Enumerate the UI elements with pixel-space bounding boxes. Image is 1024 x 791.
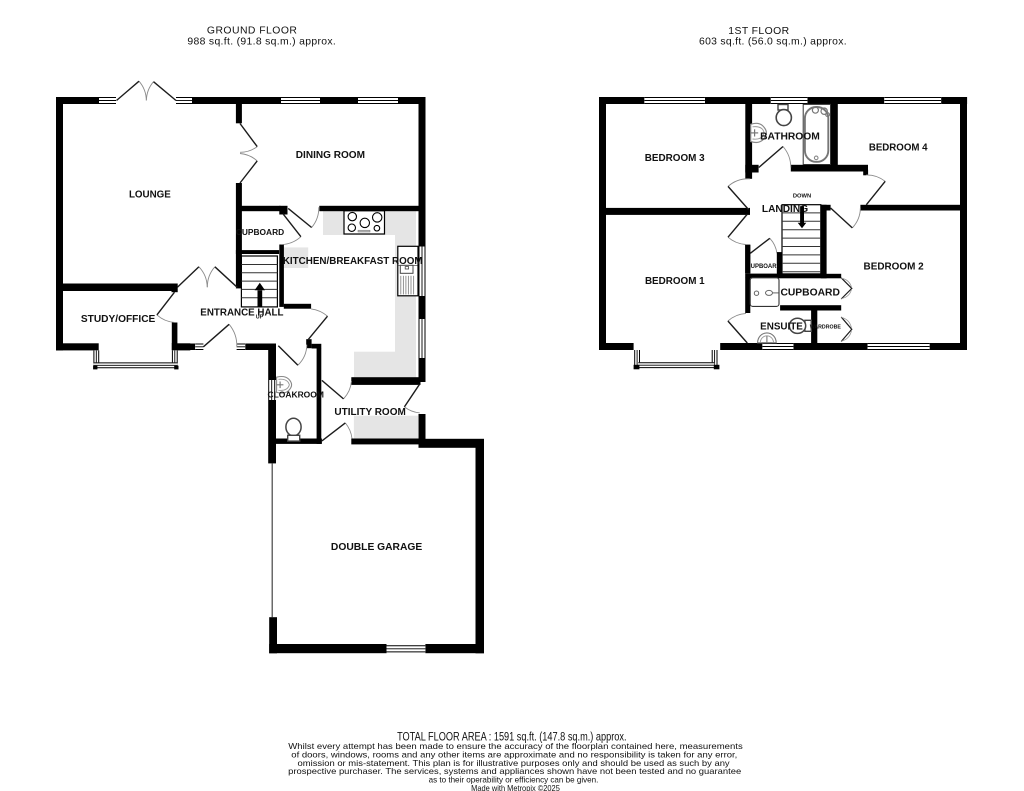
svg-text:BEDROOM 1: BEDROOM 1 — [645, 276, 705, 287]
svg-text:BATHROOM: BATHROOM — [760, 132, 820, 143]
svg-text:ENSUITE: ENSUITE — [760, 322, 803, 333]
svg-text:UP: UP — [256, 315, 264, 321]
svg-text:WARDROBE: WARDROBE — [810, 324, 842, 330]
svg-text:GROUND FLOOR: GROUND FLOOR — [207, 26, 297, 37]
svg-text:BEDROOM 4: BEDROOM 4 — [869, 143, 928, 154]
svg-text:UTILITY ROOM: UTILITY ROOM — [334, 407, 405, 418]
svg-text:DINING ROOM: DINING ROOM — [296, 150, 365, 161]
svg-text:STUDY/OFFICE: STUDY/OFFICE — [81, 314, 156, 325]
svg-text:CLOAKROOM: CLOAKROOM — [268, 389, 324, 399]
svg-text:ENTRANCE HALL: ENTRANCE HALL — [200, 308, 283, 319]
svg-text:CUPBOARD: CUPBOARD — [780, 288, 840, 299]
svg-text:Made with Metropix ©2025: Made with Metropix ©2025 — [471, 784, 560, 791]
svg-text:603 sq.ft. (56.0 sq.m.) approx: 603 sq.ft. (56.0 sq.m.) approx. — [699, 37, 847, 48]
svg-text:988 sq.ft. (91.8 sq.m.) approx: 988 sq.ft. (91.8 sq.m.) approx. — [187, 37, 335, 48]
svg-text:KITCHEN/BREAKFAST ROOM: KITCHEN/BREAKFAST ROOM — [283, 256, 423, 267]
svg-text:DOUBLE GARAGE: DOUBLE GARAGE — [331, 542, 423, 553]
svg-text:BEDROOM 2: BEDROOM 2 — [864, 262, 924, 273]
svg-text:LOUNGE: LOUNGE — [129, 190, 171, 201]
svg-text:DOWN: DOWN — [793, 194, 811, 200]
svg-text:CUPBOARD: CUPBOARD — [746, 264, 781, 270]
svg-text:CUPBOARD: CUPBOARD — [236, 227, 284, 237]
svg-text:BEDROOM 3: BEDROOM 3 — [645, 153, 705, 164]
svg-text:1ST FLOOR: 1ST FLOOR — [728, 26, 789, 37]
